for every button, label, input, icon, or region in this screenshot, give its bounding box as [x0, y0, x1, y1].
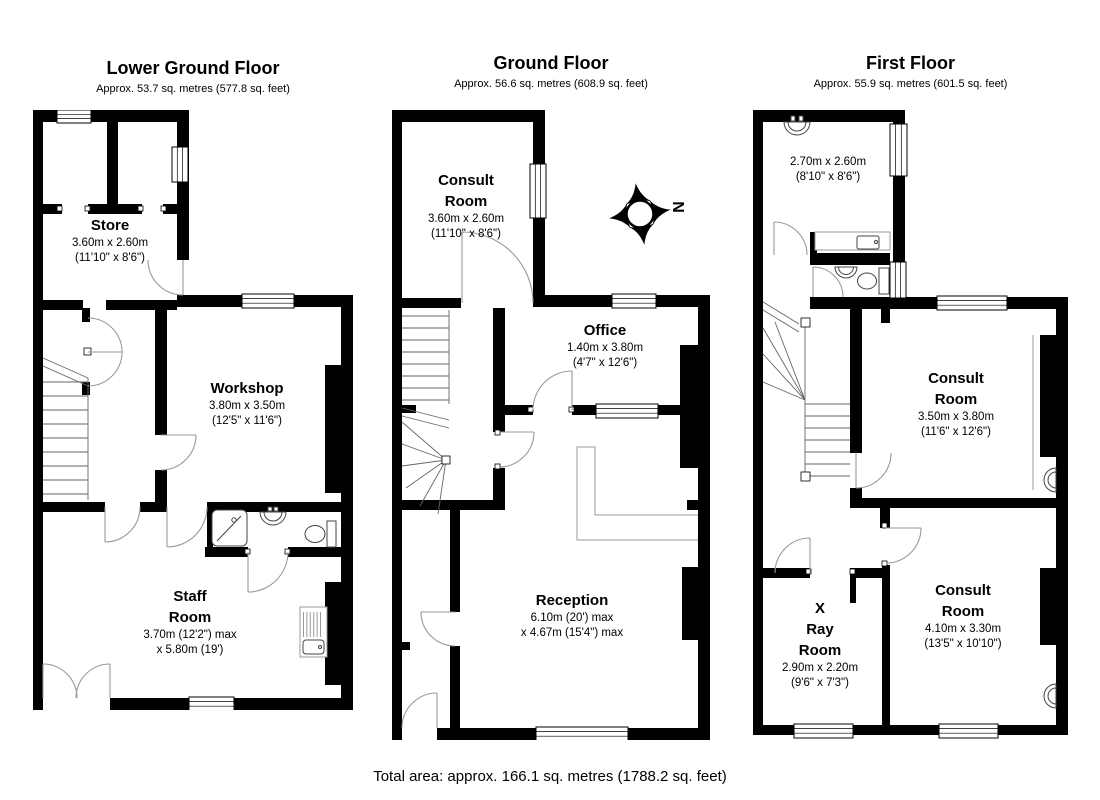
- window: [57, 110, 91, 123]
- door-arc: [462, 232, 533, 303]
- window: [612, 294, 656, 308]
- toilet: [858, 268, 890, 294]
- double-door-arcs: [43, 664, 110, 698]
- room-label-store: Store 3.60m x 2.60m (11'10" x 8'6"): [72, 215, 148, 266]
- toilet: [305, 521, 336, 547]
- first-floor-area: Approx. 55.9 sq. metres (601.5 sq. feet): [753, 78, 1068, 90]
- window: [536, 727, 628, 740]
- window: [794, 724, 853, 738]
- window: [242, 294, 294, 308]
- door-arc: [775, 538, 810, 573]
- window: [596, 404, 658, 418]
- room-label-gf-consult-room: Consult Room 3.60m x 2.60m (11'10" x 8'6…: [428, 170, 504, 242]
- room-label-xray-room: X Ray Room 2.90m x 2.20m (9'6" x 7'3"): [782, 598, 858, 691]
- counter: [815, 232, 890, 250]
- window: [530, 164, 546, 218]
- room-label-ff-consult-room-mid: Consult Room 3.50m x 3.80m (11'6" x 12'6…: [918, 368, 994, 440]
- window: [939, 724, 998, 738]
- door-arc: [167, 507, 207, 547]
- door-arc: [886, 528, 921, 563]
- first-floor-plan: 2.70m x 2.60m (8'10" x 8'6") Consult Roo…: [753, 110, 1068, 740]
- floorplan-page: Lower Ground Floor Approx. 53.7 sq. metr…: [0, 0, 1100, 800]
- window: [189, 697, 234, 710]
- lgf-stairs: [43, 358, 88, 500]
- lower-ground-floor-header: Lower Ground Floor Approx. 53.7 sq. metr…: [33, 58, 353, 95]
- shower: [212, 510, 247, 546]
- ff-door-jambs: [806, 523, 887, 574]
- room-label-workshop: Workshop 3.80m x 3.50m (12'5" x 11'6"): [209, 378, 285, 429]
- door-arc: [88, 318, 122, 386]
- total-area-text: Total area: approx. 166.1 sq. metres (17…: [0, 768, 1100, 785]
- window: [890, 262, 906, 298]
- ff-stairs: [763, 302, 850, 481]
- door-arc: [856, 453, 891, 488]
- compass-icon: N: [598, 176, 698, 256]
- door-arc: [774, 222, 807, 255]
- door-arc: [161, 435, 196, 470]
- door-arc: [402, 693, 437, 728]
- ground-floor-area: Approx. 56.6 sq. metres (608.9 sq. feet): [392, 78, 710, 90]
- compass-north-label: N: [669, 201, 686, 213]
- window: [172, 147, 188, 182]
- window: [937, 296, 1007, 310]
- lower-ground-floor-title: Lower Ground Floor: [33, 58, 353, 79]
- room-label-office: Office 1.40m x 3.80m (4'7" x 12'6"): [567, 320, 643, 371]
- sink: [1044, 468, 1056, 492]
- ground-floor-header: Ground Floor Approx. 56.6 sq. metres (60…: [392, 53, 710, 90]
- window: [890, 124, 907, 176]
- door-arc: [248, 552, 288, 592]
- door-arc: [499, 432, 534, 467]
- ground-floor-title: Ground Floor: [392, 53, 710, 74]
- room-label-ff-consult-room-bottom: Consult Room 4.10m x 3.30m (13'5" x 10'1…: [924, 580, 1001, 652]
- lgf-bathroom-fixtures: [212, 507, 336, 547]
- door-arc: [421, 612, 455, 646]
- sink: [1044, 684, 1056, 708]
- door-arc: [148, 260, 183, 295]
- gf-door-jambs: [495, 407, 574, 469]
- first-floor-title: First Floor: [753, 53, 1068, 74]
- sink: [835, 267, 857, 278]
- room-label-staff-room: Staff Room 3.70m (12'2") max x 5.80m (19…: [143, 586, 236, 658]
- room-label-ff-top-room: 2.70m x 2.60m (8'10" x 8'6"): [790, 155, 866, 185]
- lower-ground-floor-area: Approx. 53.7 sq. metres (577.8 sq. feet): [33, 83, 353, 95]
- first-floor-header: First Floor Approx. 55.9 sq. metres (601…: [753, 53, 1068, 90]
- lower-ground-floor-plan: Store 3.60m x 2.60m (11'10" x 8'6") Work…: [33, 110, 353, 710]
- gf-reception-desk: [577, 447, 698, 540]
- lgf-kitchen-counter: [300, 607, 327, 657]
- room-label-reception: Reception 6.10m (20') max x 4.67m (15'4"…: [521, 590, 623, 641]
- door-arc: [533, 371, 572, 410]
- door-arc: [105, 507, 140, 542]
